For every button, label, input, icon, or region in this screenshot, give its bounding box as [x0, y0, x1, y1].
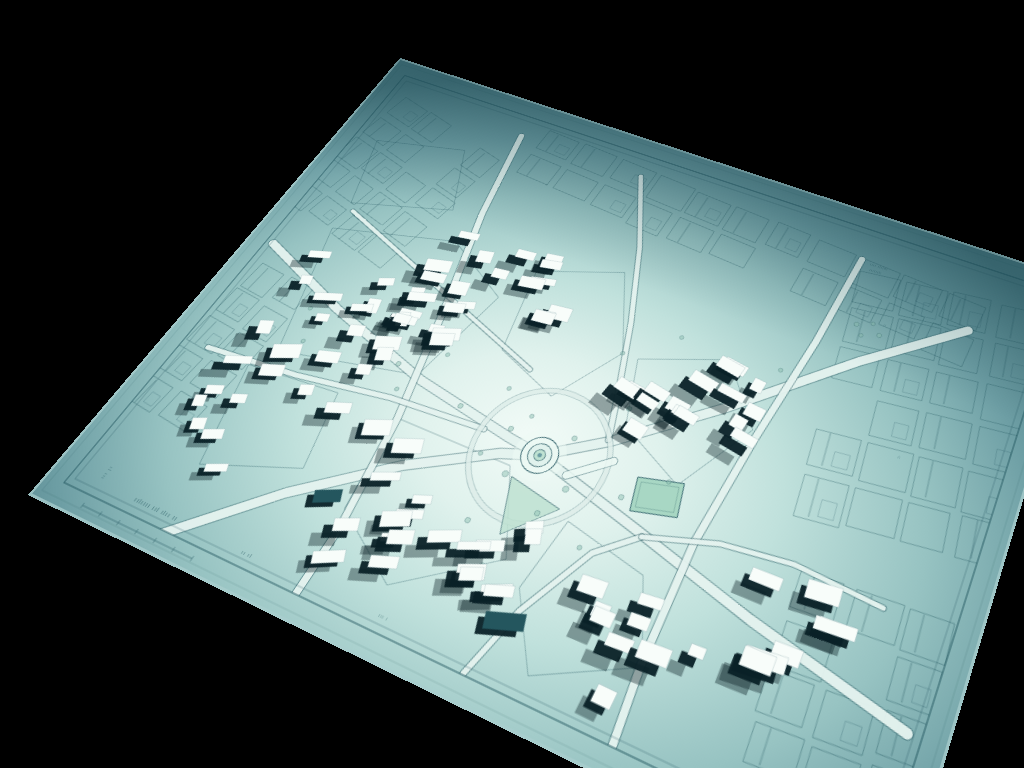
scene-background: ıılıııı ııl ılıı ıııı ılıııı ılıınıııılı… [0, 0, 1024, 768]
map-sheet: ıılıııı ııl ılıı ıııı ılıııı ılıınıııılı… [28, 58, 1024, 768]
map-svg: ıılıııı ııl ılıı ıııı ılıııı ılıınıııılı… [28, 58, 1024, 768]
